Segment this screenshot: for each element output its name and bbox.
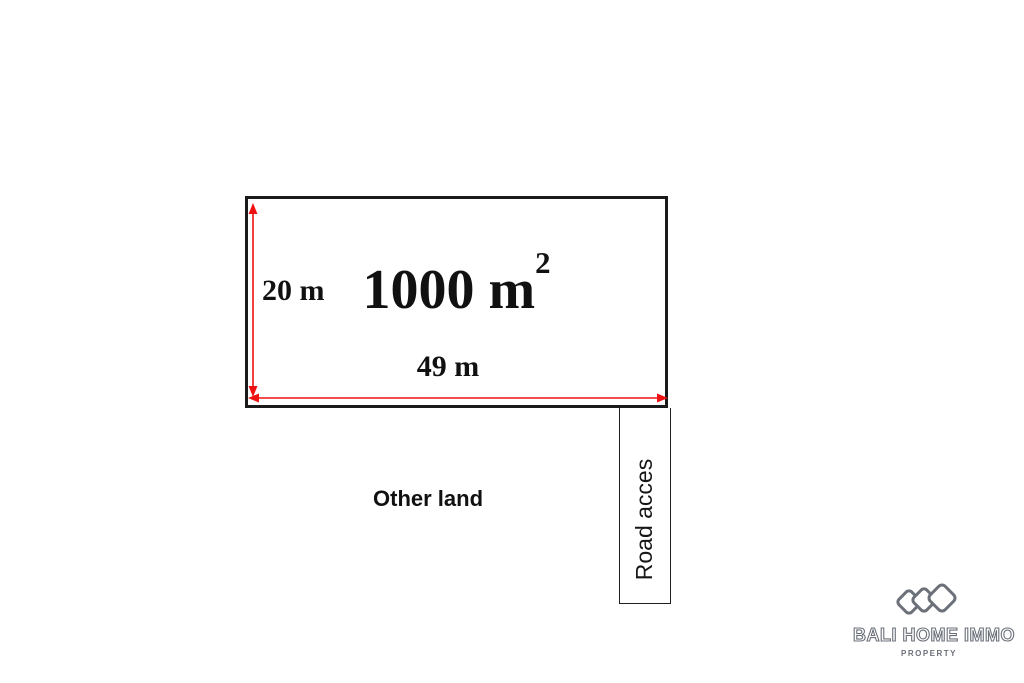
width-dimension-arrow-icon <box>247 390 669 406</box>
width-arrow-head-left <box>248 394 259 403</box>
road-access-label: Road acces <box>632 459 659 580</box>
plot-width-label: 49 m <box>245 350 651 384</box>
other-land-label: Other land <box>373 486 483 512</box>
bali-home-immo-logo: BALI HOME IMMO PROPERTY <box>853 578 1005 658</box>
plot-area-label: 1000 m2 <box>245 262 668 318</box>
width-arrow-head-right <box>657 394 668 403</box>
logo-diamonds-icon <box>894 578 964 622</box>
logo-tagline: PROPERTY <box>853 649 1005 658</box>
logo-diamond-right <box>927 583 957 613</box>
plot-area-exponent: 2 <box>535 246 550 280</box>
plot-area-value: 1000 m <box>362 259 535 321</box>
road-access-strip: Road acces <box>619 408 671 604</box>
land-plot-diagram: 20 m 1000 m2 49 m Other land Road acces … <box>0 0 1024 683</box>
logo-company-name: BALI HOME IMMO <box>853 625 1005 646</box>
height-arrow-head-top <box>249 203 258 214</box>
